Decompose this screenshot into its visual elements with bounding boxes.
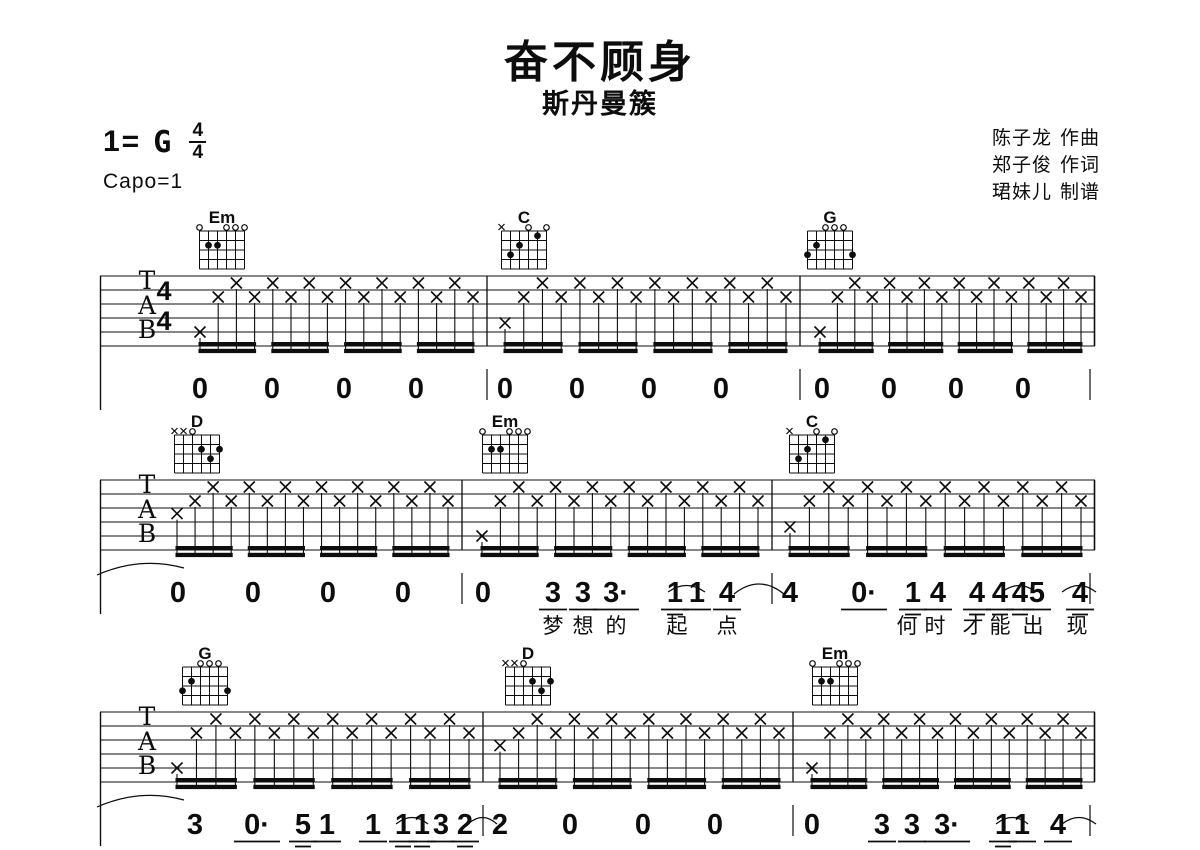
beam (409, 778, 470, 782)
beam (573, 778, 632, 782)
sheet-music-page: 奋不顾身 斯丹曼簇 1= G 4 4 Capo=1 陈子龙作曲 郑子俊作词 珺妹… (0, 0, 1200, 850)
beam (417, 342, 475, 346)
open-string-marker (544, 225, 550, 231)
melody-number: 0 (245, 577, 261, 609)
finger-dot (795, 455, 802, 462)
beam (789, 553, 850, 557)
melody-number: 0 (713, 373, 729, 405)
chord-label: Em (209, 208, 235, 227)
beam (409, 785, 470, 789)
melody-number: 0 (336, 373, 352, 405)
open-string-marker (832, 429, 838, 435)
beam (653, 342, 712, 346)
finger-dot (813, 242, 820, 249)
lyric-syllable: 梦 (543, 615, 564, 638)
tab-clef: TAB (137, 266, 157, 344)
beam (628, 553, 686, 557)
melody-number: 3· (603, 577, 629, 609)
melody-numbers: 000000000000 (192, 369, 1090, 405)
beam (176, 553, 233, 557)
melody-number: 1 (414, 809, 430, 841)
melody-number: 0 (562, 809, 578, 841)
measure-strums (495, 714, 785, 790)
melody-number: 0 (1015, 373, 1031, 405)
beam (954, 778, 1011, 782)
beam (199, 342, 257, 346)
chord-diagram-Em: Em (810, 644, 861, 705)
beam (811, 785, 868, 789)
melody-number: 0 (948, 373, 964, 405)
beam (944, 546, 1005, 550)
tab-system-2: TABDEmC00000333·11440·1444454梦想的起点何时才能出现 (97, 412, 1096, 638)
chord-diagram-C: C (499, 208, 550, 269)
melody-number: 4 (969, 577, 985, 609)
melody-number: 0 (569, 373, 585, 405)
melody-number: 5 (295, 809, 311, 841)
lyric-syllable: 的 (606, 615, 627, 638)
lyric-syllable: 现 (1067, 615, 1088, 638)
open-string-marker (480, 429, 486, 435)
beam (882, 778, 939, 782)
beam (344, 342, 402, 346)
lyric-syllable: 起 (667, 615, 688, 638)
melody-numbers: 00000333·11440·1444454 (170, 573, 1094, 615)
beam (701, 546, 759, 550)
beam (888, 349, 943, 353)
finger-dot (547, 678, 554, 685)
melody-number: 0 (641, 373, 657, 405)
tab-letter-B: B (138, 519, 156, 548)
beam (728, 342, 787, 346)
beam (481, 553, 539, 557)
beam (701, 553, 759, 557)
beam (647, 778, 706, 782)
finger-dot (516, 242, 523, 249)
lyric-syllable: 时 (925, 615, 946, 638)
beam (1026, 778, 1083, 782)
beam (944, 553, 1005, 557)
melody-number: 0 (395, 577, 411, 609)
finger-dot (488, 446, 495, 453)
beam (176, 785, 237, 789)
melody-number: 1 (365, 809, 381, 841)
chord-diagram-G: G (179, 644, 231, 705)
staff-meter-bottom: 4 (156, 306, 171, 336)
finger-dot (207, 455, 214, 462)
beam (176, 778, 237, 782)
measure-strums (807, 714, 1087, 790)
beam (1027, 342, 1082, 346)
melody-number: 0· (244, 809, 270, 841)
measure-strums (195, 278, 479, 354)
tie-arc (734, 584, 784, 594)
beam (554, 553, 612, 557)
melody-number: 4 (782, 577, 798, 609)
melody-number: 4 (1072, 577, 1088, 609)
finger-dot (822, 436, 829, 443)
open-string-marker (525, 429, 531, 435)
measure-strums (477, 482, 764, 558)
chord-diagram-G: G (804, 208, 856, 269)
melody-number: 2 (492, 809, 508, 841)
beam (481, 546, 539, 550)
melody-number: 0 (408, 373, 424, 405)
open-string-marker (197, 225, 203, 231)
beam (271, 349, 329, 353)
score-canvas: TAB44EmCG000000000000TABDEmC00000333·114… (0, 0, 1200, 850)
measure-strums (785, 482, 1087, 558)
beam (271, 342, 329, 346)
melody-number: 0 (475, 577, 491, 609)
finger-dot (179, 687, 186, 694)
finger-dot (188, 678, 195, 685)
beam (958, 349, 1013, 353)
beam (253, 785, 314, 789)
finger-dot (198, 446, 205, 453)
lyric-syllable: 何 (897, 615, 918, 638)
melody-number: 1 (1014, 809, 1030, 841)
melody-number: 3 (904, 809, 920, 841)
open-string-marker (216, 661, 222, 667)
melody-number: 3 (874, 809, 890, 841)
tie-arc (1062, 818, 1096, 825)
beam (320, 546, 377, 550)
beam (958, 342, 1013, 346)
chord-diagram-Em: Em (197, 208, 248, 269)
tab-letter-B: B (138, 751, 156, 780)
melody-number: 1 (395, 809, 411, 841)
melody-number: 0 (635, 809, 651, 841)
tab-system-3: TABGDEm30·511113220000333·114 (97, 644, 1096, 850)
chord-diagram-Em: Em (480, 412, 531, 473)
beam (1021, 546, 1082, 550)
staff-lines (100, 712, 1095, 782)
beam (789, 546, 850, 550)
measure-strums (500, 278, 792, 354)
beam (819, 342, 874, 346)
continuation-tie-arc (97, 563, 184, 575)
beam (417, 349, 475, 353)
melody-number: 1 (905, 577, 921, 609)
melody-number: 0 (192, 373, 208, 405)
lyrics-row: 梦想的起点何时才能出现 (543, 615, 1088, 638)
melody-number: 0 (264, 373, 280, 405)
finger-dot (538, 687, 545, 694)
beam (722, 778, 781, 782)
tab-clef: TAB (137, 470, 157, 548)
finger-dot (205, 242, 212, 249)
open-string-marker (846, 661, 852, 667)
melody-number: 3 (545, 577, 561, 609)
beam (578, 349, 637, 353)
beam (882, 785, 939, 789)
melody-number: 4 (930, 577, 946, 609)
melody-number: 1 (689, 577, 705, 609)
chord-diagram-D: D (503, 644, 554, 705)
finger-dot (497, 446, 504, 453)
chord-label: Em (492, 412, 518, 431)
beam (331, 785, 392, 789)
finger-dot (216, 446, 223, 453)
chord-label: Em (822, 644, 848, 663)
melody-number: 0 (320, 577, 336, 609)
melody-number: 0 (814, 373, 830, 405)
beam (647, 785, 706, 789)
beam (573, 785, 632, 789)
measure-strums (172, 482, 454, 558)
melody-number: 0 (707, 809, 723, 841)
beam (954, 785, 1011, 789)
beam (866, 553, 927, 557)
beam (499, 778, 558, 782)
beam (176, 546, 233, 550)
finger-dot (804, 446, 811, 453)
chord-diagram-C: C (787, 412, 838, 473)
beam (344, 349, 402, 353)
melody-number: 0 (170, 577, 186, 609)
finger-dot (827, 678, 834, 685)
beam (1027, 349, 1082, 353)
beam (866, 546, 927, 550)
beam (504, 349, 563, 353)
melody-number: 2 (457, 809, 473, 841)
tab-clef: TAB (137, 702, 157, 780)
beam (253, 778, 314, 782)
continuation-tie-arc (97, 795, 184, 807)
melody-number: 4 (1012, 577, 1028, 609)
beam (320, 553, 377, 557)
beam (248, 546, 305, 550)
staff-lines (100, 276, 1095, 346)
open-string-marker (841, 225, 847, 231)
melody-number: 1 (667, 577, 683, 609)
beam (392, 546, 449, 550)
melody-number: 3 (187, 809, 203, 841)
beam (504, 342, 563, 346)
lyric-syllable: 点 (717, 615, 738, 638)
beam (331, 778, 392, 782)
melody-number: 1 (995, 809, 1011, 841)
lyric-syllable: 出 (1023, 615, 1044, 638)
melody-number: 3 (575, 577, 591, 609)
finger-dot (529, 678, 536, 685)
finger-dot (507, 251, 514, 258)
finger-dot (224, 687, 231, 694)
finger-dot (804, 251, 811, 258)
melody-number: 0 (881, 373, 897, 405)
beam (888, 342, 943, 346)
beam (1021, 553, 1082, 557)
staff-meter-top: 4 (156, 276, 171, 306)
open-string-marker (233, 225, 239, 231)
measure-strums (815, 278, 1087, 354)
finger-dot (849, 251, 856, 258)
chord-diagram-D: D (172, 412, 223, 473)
tab-letter-B: B (138, 315, 156, 344)
beam (653, 349, 712, 353)
beam (578, 342, 637, 346)
open-string-marker (516, 429, 522, 435)
melody-number: 0· (851, 577, 877, 609)
measure-strums (172, 714, 475, 790)
tab-system-1: TAB44EmCG000000000000 (100, 208, 1095, 410)
open-string-marker (242, 225, 248, 231)
lyric-syllable: 想 (573, 615, 594, 638)
beam (728, 349, 787, 353)
finger-dot (534, 232, 541, 239)
melody-number: 4 (1050, 809, 1066, 841)
beam (819, 349, 874, 353)
melody-number: 4 (719, 577, 735, 609)
lyric-syllable: 能 (990, 615, 1011, 638)
melody-number: 5 (1029, 577, 1045, 609)
beam (1026, 785, 1083, 789)
beam (811, 778, 868, 782)
beam (722, 785, 781, 789)
melody-number: 1 (319, 809, 335, 841)
beam (499, 785, 558, 789)
open-string-marker (855, 661, 861, 667)
melody-number: 0 (497, 373, 513, 405)
lyric-syllable: 才 (963, 615, 984, 638)
beam (392, 553, 449, 557)
melody-number: 3· (934, 809, 960, 841)
melody-number: 4 (992, 577, 1008, 609)
beam (628, 546, 686, 550)
finger-dot (818, 678, 825, 685)
beam (199, 349, 257, 353)
finger-dot (214, 242, 221, 249)
melody-numbers: 30·511113220000333·114 (187, 805, 1090, 850)
melody-number: 0 (804, 809, 820, 841)
beam (248, 553, 305, 557)
melody-number: 3 (433, 809, 449, 841)
open-string-marker (810, 661, 816, 667)
beam (554, 546, 612, 550)
